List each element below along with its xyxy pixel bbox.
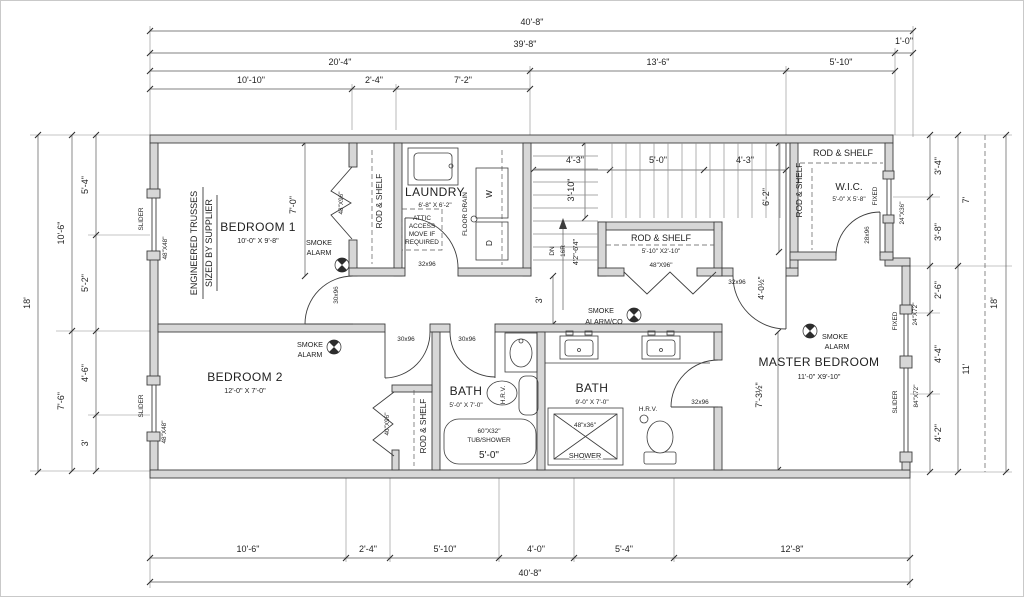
attic-access-note: REQUIRED [405, 239, 439, 246]
shower-size-label: 48"x36" [574, 422, 596, 429]
dim-label: 6'-2" [761, 188, 771, 206]
wall-hall-closet-return [697, 268, 722, 276]
dim-label: 3'-10" [566, 179, 576, 202]
dim-label: 5'-0" [649, 155, 667, 165]
wall-laundry-south [349, 268, 405, 276]
wall-bath2-east [714, 407, 722, 470]
tub-size-label: 60"X32" [477, 428, 500, 435]
dim-label: 2'-4" [359, 544, 377, 554]
room-name-bath2: BATH [576, 381, 609, 395]
dim-label: 13'-6" [647, 57, 670, 67]
dim-label: 4'-0½" [757, 276, 766, 299]
dim-label: 11' [961, 363, 971, 374]
wall-hall-east [722, 268, 733, 276]
dim-label: 7' [961, 196, 971, 203]
window-mullion [900, 356, 912, 368]
window-frame-block [147, 189, 160, 198]
tub-width-label: 5'-0" [479, 450, 499, 461]
dryer-label: D [485, 240, 494, 246]
wall-wic-south [790, 252, 836, 260]
rod-shelf-label: ROD & SHELF [631, 233, 692, 243]
room-name-master: MASTER BEDROOM [759, 355, 880, 369]
wall-hall-east [786, 268, 798, 276]
dim-label: 39'-8" [514, 39, 537, 49]
rod-shelf-label: ROD & SHELF [375, 174, 384, 229]
bifold-tag: 48"X96" [338, 191, 345, 214]
dim-label: 4'-0" [527, 544, 545, 554]
window-tag: SLIDER [138, 394, 145, 417]
window-frame-block [900, 305, 912, 314]
dim-label: 18' [989, 297, 999, 309]
wall-exterior-left [150, 252, 158, 384]
rod-shelf-label: ROD & SHELF [419, 399, 428, 454]
room-size-wic: 5'-0" X 5'-8" [832, 196, 865, 203]
room-size-bath2: 9'-0" X 7'-0" [575, 399, 608, 406]
room-size-bath1: 5'-0" X 7'-0" [449, 402, 482, 409]
trusses-note: ENGINEERED TRUSSES [189, 191, 199, 295]
wall-laundry-stair [523, 143, 531, 276]
door-tag: 32x96 [418, 261, 436, 268]
window-frame-block [883, 171, 894, 179]
wall-hall-closet-return [598, 268, 624, 276]
attic-access-note: ATTIC [413, 215, 431, 222]
dim-label: 20'-4" [329, 57, 352, 67]
dim-label: 7'-3½" [754, 382, 764, 407]
dim-label: 40'-8" [519, 568, 542, 578]
window-frame-block [147, 251, 160, 260]
window-frame-block [900, 452, 912, 462]
attic-access-note: ACCESS [409, 223, 435, 230]
dim-label: 4'-3" [736, 155, 754, 165]
wall-exterior-bottom [150, 470, 910, 478]
smoke-alarm-label: ALARM/CO [585, 317, 623, 326]
hrv-label: H.R.V. [639, 406, 657, 413]
door-tag: 32x96 [691, 399, 709, 406]
wall-bedroom-divider [158, 324, 385, 332]
dim-label: 10'-6" [237, 544, 260, 554]
dim-label: 18' [22, 297, 32, 309]
dim-label: 7'-0" [288, 196, 298, 214]
smoke-alarm-label: SMOKE [588, 306, 614, 315]
dim-label: 2'-6" [933, 281, 943, 299]
dim-label: 2'-4" [365, 75, 383, 85]
trusses-note: SIZED BY SUPPLIER [204, 199, 214, 287]
dim-label: 4'-4" [933, 345, 943, 363]
room-name-wic: W.I.C. [835, 182, 862, 193]
floor-drain-label: FLOOR DRAIN [462, 192, 469, 236]
dim-label: 10'-10" [237, 75, 265, 85]
room-name-laundry: LAUNDRY [405, 185, 465, 199]
window-tag: SLIDER [138, 207, 145, 230]
wall-hall-closet-top [598, 222, 722, 230]
window-frame-block [147, 432, 160, 441]
window-tag: FIXED [872, 186, 879, 205]
tub-label: TUB/SHOWER [467, 437, 511, 444]
door-tag: 28x96 [864, 226, 871, 244]
door-tag: 30x96 [458, 336, 476, 343]
window-tag: SLIDER [892, 390, 899, 413]
window-tag: 24"X72" [912, 302, 919, 325]
wall-bedroom2-closet-stub [392, 450, 399, 470]
wall-hall-south [430, 324, 450, 332]
dim-label: 3'-4" [933, 157, 943, 175]
window-tag: 84"X72" [913, 384, 920, 407]
dim-label: 3'-8" [933, 223, 943, 241]
stair-down-label: DN [549, 246, 556, 256]
room-size-bedroom1: 10'-0" X 9'-8" [237, 236, 279, 245]
bath2-toilet [647, 421, 673, 453]
dim-label: 4'-3" [566, 155, 584, 165]
floor-plan-sheet: 40'-8" 39'-8" 1'-0" 20'-4" 13'-6" 5'-10"… [0, 0, 1024, 597]
dim-label: 5'-2" [80, 274, 90, 292]
floor-plan-drawing: 40'-8" 39'-8" 1'-0" 20'-4" 13'-6" 5'-10"… [0, 0, 1024, 597]
dim-label: 5'-10" [830, 57, 853, 67]
rod-shelf-label: ROD & SHELF [795, 163, 804, 218]
shower-label: SHOWER [569, 451, 601, 460]
dim-label: 40'-8" [521, 17, 544, 27]
wall-bath1-west [432, 332, 440, 470]
smoke-alarm-label: SMOKE [822, 332, 848, 341]
room-name-bath1: BATH [450, 384, 483, 398]
stair-risers-label: 16R [560, 245, 567, 257]
room-name-bedroom2: BEDROOM 2 [207, 370, 283, 384]
dim-label: 4'-6" [80, 364, 90, 382]
smoke-alarm-label: SMOKE [297, 340, 323, 349]
wall-exterior-top [150, 135, 893, 143]
window-tag: FIXED [892, 311, 899, 330]
wall-laundry-south [458, 268, 531, 276]
smoke-alarm-label: ALARM [825, 342, 850, 351]
wall-wic-south [880, 252, 893, 260]
dim-label: 4'-2" [933, 424, 943, 442]
window-frame-block [883, 215, 894, 223]
door-tag: 32x96 [728, 279, 746, 286]
dim-label: 12'-8" [781, 544, 804, 554]
attic-access-note: MOVE IF [409, 231, 435, 238]
wall-bath2-east [714, 332, 722, 360]
smoke-alarm-label: SMOKE [306, 238, 332, 247]
hrv-label: H.R.V. [500, 386, 507, 404]
door-tag: 30x96 [397, 336, 415, 343]
dim-label: 1'-0" [895, 36, 913, 46]
room-size-bedroom2: 12'-0" X 7'-0" [224, 386, 266, 395]
hall-closet-size: 5'-10" X2'-10" [642, 248, 681, 255]
dim-label: 5'-4" [80, 176, 90, 194]
smoke-alarm-label: ALARM [307, 248, 332, 257]
smoke-alarm-label: ALARM [298, 350, 323, 359]
bifold-tag: 40"X96" [384, 412, 391, 435]
room-name-bedroom1: BEDROOM 1 [220, 220, 296, 234]
dim-label: 5'-4" [615, 544, 633, 554]
window-tag: 24"X36" [899, 201, 906, 224]
dim-label: 3' [80, 439, 90, 446]
window-tag: 48"X48" [161, 420, 168, 443]
window-frame-block [147, 376, 160, 385]
door-tag: 30x96 [333, 286, 340, 304]
rod-shelf-label: ROD & SHELF [813, 148, 874, 158]
washer-label: W [485, 190, 494, 198]
wall-bedroom1-east [349, 143, 357, 167]
stair-note-label: 4'2"-6'4" [571, 238, 580, 265]
bifold-tag: 48"X96" [649, 262, 672, 269]
dim-label: 3' [534, 296, 544, 303]
dim-label: 10'-6" [56, 222, 66, 245]
window-tag: 48"X48" [162, 236, 169, 259]
dim-label: 7'-6" [56, 392, 66, 410]
dim-label: 7'-2" [454, 75, 472, 85]
room-size-laundry: 6'-8" X 6'-2" [418, 202, 451, 209]
room-size-master: 11'-0" X9'-10" [798, 372, 841, 381]
wall-closet-laundry [394, 143, 402, 276]
wall-bedroom2-closet [392, 385, 432, 392]
dim-label: 5'-10" [434, 544, 457, 554]
